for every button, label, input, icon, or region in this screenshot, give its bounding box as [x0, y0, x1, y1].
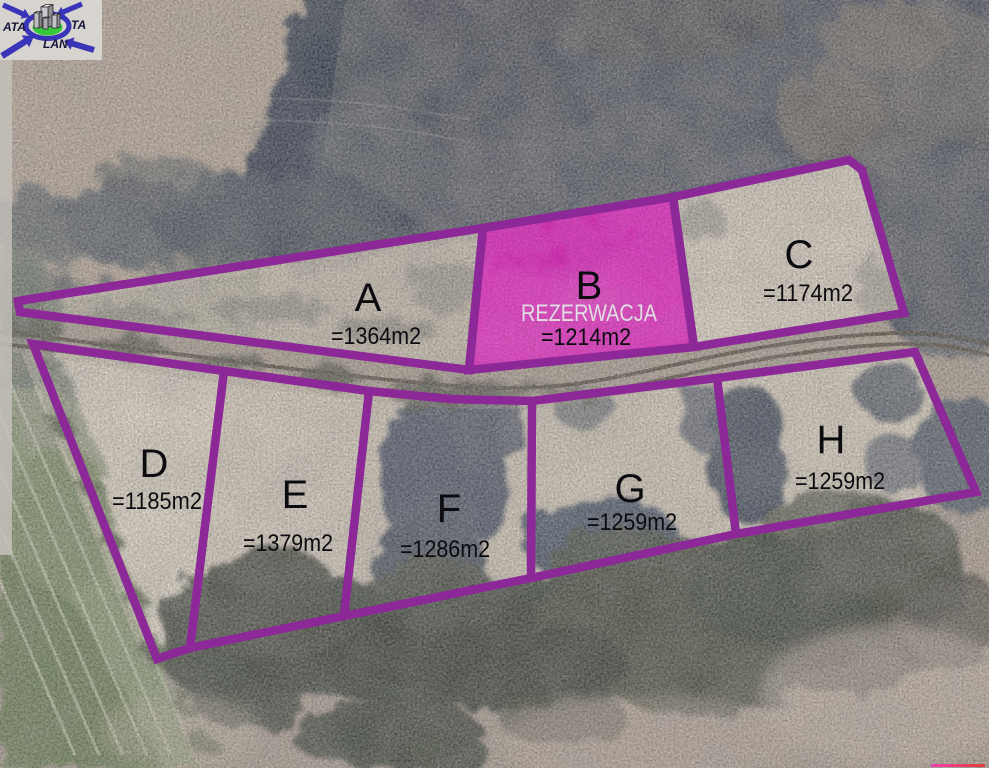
svg-text:=1174m2: =1174m2	[763, 280, 853, 307]
svg-text:=1259m2: =1259m2	[795, 468, 885, 495]
svg-text:=1185m2: =1185m2	[112, 488, 202, 515]
svg-text:F: F	[437, 487, 461, 531]
svg-text:=1379m2: =1379m2	[243, 530, 333, 557]
svg-text:=1286m2: =1286m2	[400, 536, 490, 563]
svg-text:C: C	[785, 233, 814, 277]
svg-text:D: D	[140, 442, 169, 486]
svg-text:LAN: LAN	[43, 37, 68, 51]
svg-text:E: E	[282, 473, 309, 517]
svg-text:G: G	[614, 467, 645, 511]
svg-text:ATA: ATA	[2, 20, 26, 34]
svg-text:TA: TA	[71, 18, 86, 32]
svg-text:H: H	[817, 418, 846, 462]
svg-text:=1259m2: =1259m2	[587, 509, 677, 536]
svg-text:A: A	[355, 276, 382, 320]
svg-text:=1214m2: =1214m2	[541, 324, 631, 351]
svg-text:REZERWACJA: REZERWACJA	[521, 300, 657, 327]
svg-text:=1364m2: =1364m2	[331, 323, 421, 350]
